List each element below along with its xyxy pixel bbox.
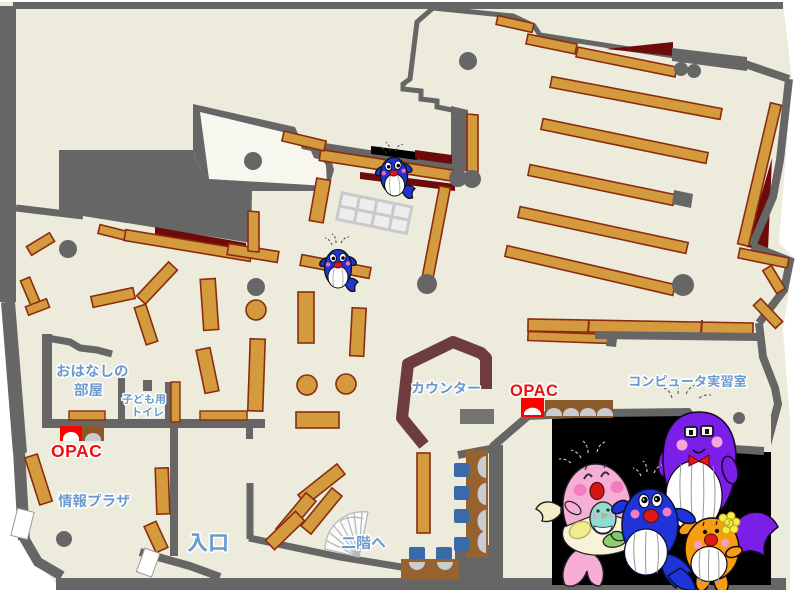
svg-text:OPAC: OPAC <box>51 441 102 461</box>
svg-text:OPAC: OPAC <box>510 382 558 400</box>
